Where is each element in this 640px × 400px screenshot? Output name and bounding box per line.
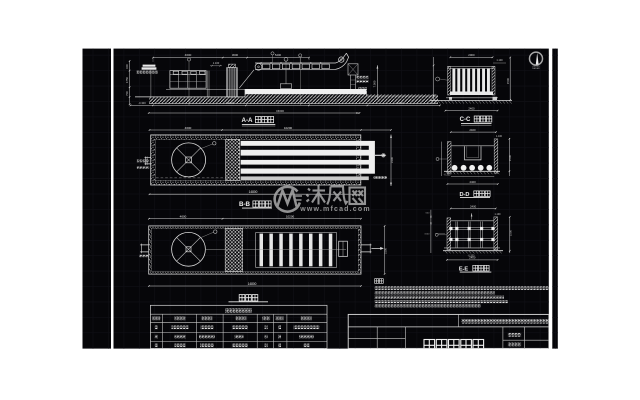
svg-text:1500: 1500 bbox=[424, 233, 430, 235]
svg-text:4600: 4600 bbox=[185, 126, 192, 130]
svg-text:1500: 1500 bbox=[509, 229, 513, 236]
svg-text:14800: 14800 bbox=[248, 282, 257, 286]
svg-text:3600: 3600 bbox=[232, 53, 239, 57]
svg-text:1.100: 1.100 bbox=[495, 213, 502, 216]
svg-text:C-C: C-C bbox=[460, 117, 471, 123]
svg-text:www.mfcad.com: www.mfcad.com bbox=[299, 206, 371, 213]
svg-text:700: 700 bbox=[125, 91, 129, 96]
svg-text:7.000: 7.000 bbox=[373, 80, 377, 87]
svg-text:14800: 14800 bbox=[226, 101, 234, 105]
svg-text:2400: 2400 bbox=[469, 180, 476, 184]
svg-text:15000: 15000 bbox=[276, 109, 284, 113]
svg-text:1.100: 1.100 bbox=[496, 59, 503, 62]
svg-text:4600: 4600 bbox=[185, 53, 192, 57]
svg-text:5400: 5400 bbox=[275, 53, 282, 57]
svg-text:14800: 14800 bbox=[249, 190, 258, 194]
svg-text:-0.350: -0.350 bbox=[444, 173, 451, 176]
svg-text:3100: 3100 bbox=[383, 247, 387, 254]
svg-text:1.100: 1.100 bbox=[213, 61, 220, 65]
svg-text:4600: 4600 bbox=[180, 215, 187, 219]
svg-text:1500: 1500 bbox=[506, 77, 510, 84]
svg-text:2400: 2400 bbox=[468, 107, 475, 111]
svg-text:2000: 2000 bbox=[468, 53, 475, 57]
svg-text:1000: 1000 bbox=[397, 101, 403, 105]
svg-text:1500: 1500 bbox=[508, 154, 512, 161]
svg-text:B-B: B-B bbox=[239, 201, 251, 208]
svg-text:10200: 10200 bbox=[284, 126, 293, 130]
svg-text:1750: 1750 bbox=[125, 76, 129, 83]
svg-text:600: 600 bbox=[125, 64, 129, 69]
svg-text:2400: 2400 bbox=[470, 204, 477, 208]
svg-text:2400: 2400 bbox=[469, 128, 476, 132]
svg-text:10200: 10200 bbox=[286, 215, 295, 219]
svg-text:2400: 2400 bbox=[469, 256, 476, 260]
svg-text:-0.300: -0.300 bbox=[138, 101, 146, 105]
svg-text:A-A: A-A bbox=[242, 117, 254, 124]
svg-text:D-D: D-D bbox=[460, 192, 470, 198]
svg-text:1.100: 1.100 bbox=[496, 135, 503, 138]
svg-text:3100: 3100 bbox=[390, 156, 394, 163]
svg-text:E-E: E-E bbox=[459, 266, 469, 272]
